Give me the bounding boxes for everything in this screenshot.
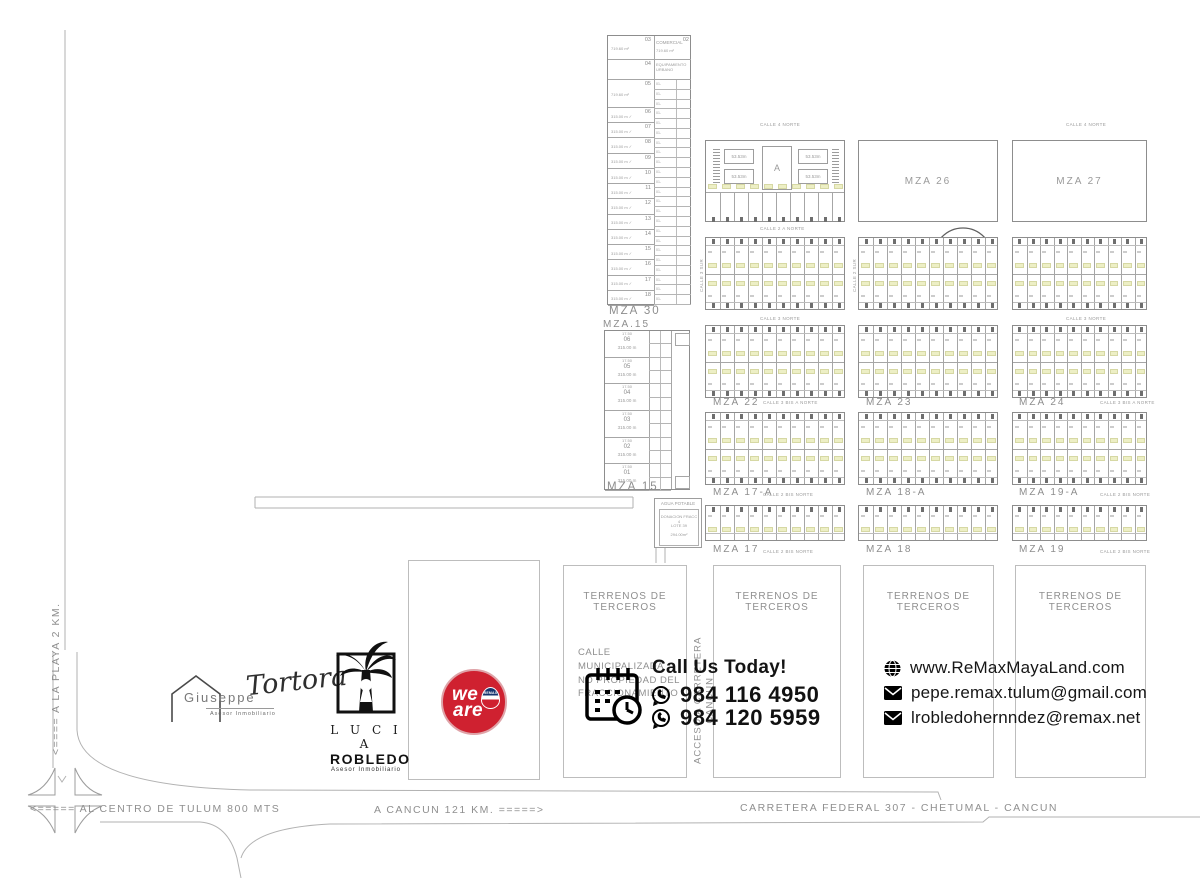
map-element: [824, 327, 827, 332]
map-element: [861, 470, 865, 472]
map-element: [973, 527, 982, 532]
lot-area: 315.00 m ✓: [611, 296, 632, 301]
map-element: [1137, 456, 1146, 461]
map-element: [676, 178, 677, 187]
map-element: [726, 414, 729, 419]
terrenos-label: TERRENOS DE TERCEROS: [1016, 591, 1145, 613]
map-element: [1099, 327, 1102, 332]
map-element: [945, 281, 954, 286]
map-element: [660, 358, 661, 370]
map-element: [1042, 295, 1046, 297]
map-element: [1083, 456, 1092, 461]
map-element: [734, 506, 735, 540]
agua-potable-title: AGUA POTABLE: [655, 501, 701, 506]
call-us-headline: Call Us Today!: [652, 657, 787, 679]
whatsapp-icon: [650, 708, 671, 729]
lot-area: 315.00 m ✓: [611, 144, 632, 149]
map-element: [917, 456, 926, 461]
map-element: [764, 456, 773, 461]
map-element: [929, 506, 930, 540]
map-element: [820, 527, 829, 532]
map-element: [722, 426, 726, 428]
email-text: lrobledohernndez@remax.net: [911, 708, 1140, 728]
map-element: [764, 527, 773, 532]
map-element: [963, 414, 966, 419]
map-element: [991, 327, 994, 332]
map-element: [917, 515, 921, 517]
map-element: [778, 351, 787, 356]
terrenos-label: TERRENOS DE TERCEROS: [864, 591, 993, 613]
lot-number: 01: [605, 470, 649, 476]
map-element: [820, 369, 829, 374]
map-element: [676, 100, 677, 109]
map-element: [1029, 369, 1038, 374]
map-element: [1096, 527, 1105, 532]
map-element: [861, 438, 870, 443]
map-element: [750, 515, 754, 517]
map-element: [778, 456, 787, 461]
lot-cell: 01-: [654, 188, 691, 198]
block-row4-col2: [858, 412, 998, 485]
block-row2-col3: [1012, 237, 1147, 310]
map-element: [1029, 263, 1038, 268]
block-label: MZA 17: [713, 544, 759, 555]
lot-code: 01-: [656, 219, 661, 223]
map-element: [722, 369, 731, 374]
map-element: [959, 470, 963, 472]
map-element: [740, 507, 743, 512]
map-element: [1018, 327, 1021, 332]
map-element: [722, 438, 731, 443]
lot-area: 315.00 m ✓: [611, 159, 632, 164]
map-element: [1013, 420, 1146, 421]
map-element: [676, 80, 677, 89]
map-element: [931, 369, 940, 374]
map-element: [987, 281, 996, 286]
map-element: [1018, 239, 1021, 244]
block-mza-26: MZA 26: [858, 140, 998, 222]
map-element: [985, 506, 986, 540]
block-label: MZA 19-A: [1019, 487, 1079, 498]
map-element: [917, 339, 921, 341]
map-element: [834, 263, 843, 268]
map-element: [754, 507, 757, 512]
map-element: [1096, 351, 1105, 356]
map-element: [889, 470, 893, 472]
map-element: [959, 251, 963, 253]
map-element: [764, 339, 768, 341]
map-element: [917, 470, 921, 472]
lot-width-dim: 17.50: [605, 464, 649, 469]
lot-number: 09: [645, 155, 651, 161]
map-element: [1072, 239, 1075, 244]
lot-number: 04: [645, 61, 651, 67]
lot-cell: 01-: [654, 158, 691, 168]
map-element: [768, 217, 771, 222]
map-element: [1113, 507, 1116, 512]
map-element: [875, 426, 879, 428]
map-element: [949, 478, 952, 483]
lot-cell: 17.5006315.00 m: [605, 331, 649, 358]
map-element: [1113, 391, 1116, 396]
map-element: [945, 339, 949, 341]
map-element: [820, 438, 829, 443]
map-element: [973, 351, 982, 356]
map-element: [1086, 303, 1089, 308]
map-element: [963, 239, 966, 244]
map-element: [706, 362, 844, 363]
map-element: [660, 438, 661, 450]
map-element: [921, 507, 924, 512]
map-element: [875, 339, 879, 341]
street-label: CALLE 3 BIS A NORTE: [1100, 400, 1155, 405]
map-element: [820, 184, 829, 189]
lot-cell: [649, 411, 671, 424]
map-element: [768, 478, 771, 483]
map-element: [1137, 295, 1141, 297]
map-element: [1108, 506, 1109, 540]
map-element: [949, 414, 952, 419]
map-element: [1110, 515, 1114, 517]
hatch-strip: [832, 149, 839, 183]
map-element: [1110, 527, 1119, 532]
map-element: [903, 456, 912, 461]
map-element: [903, 527, 912, 532]
map-element: [879, 478, 882, 483]
lot-cell: 17.5004315.00 m: [605, 384, 649, 411]
map-element: [1126, 303, 1129, 308]
map-element: [931, 281, 940, 286]
map-element: [834, 456, 843, 461]
lot-width-dim: 17.50: [605, 331, 649, 336]
map-element: [676, 276, 677, 285]
map-element: [959, 438, 968, 443]
map-element: [740, 478, 743, 483]
map-element: [824, 478, 827, 483]
map-element: [838, 327, 841, 332]
map-element: [931, 438, 940, 443]
map-element: [838, 478, 841, 483]
map-element: [1083, 515, 1087, 517]
map-element: [879, 327, 882, 332]
map-element: [977, 414, 980, 419]
map-element: [796, 507, 799, 512]
map-element: [1015, 281, 1024, 286]
map-element: [1137, 383, 1141, 385]
map-element: [861, 281, 870, 286]
map-element: [859, 245, 997, 246]
map-element: [1072, 507, 1075, 512]
map-element: [935, 507, 938, 512]
map-element: [917, 263, 926, 268]
map-element: [959, 383, 963, 385]
map-element: [782, 239, 785, 244]
plaza-lot-dim: 53.53m: [798, 169, 828, 184]
map-element: [792, 263, 801, 268]
lot-cell: 04: [608, 60, 654, 80]
map-element: [750, 339, 754, 341]
lot-cell: [649, 358, 671, 371]
block-label: MZA 18: [866, 544, 912, 555]
map-element: [931, 383, 935, 385]
map-element: [712, 217, 715, 222]
map-element: [1042, 351, 1051, 356]
lot-cell: EQUIPAMIENTO URBANO: [654, 60, 691, 80]
map-element: [671, 331, 672, 489]
map-element: [1054, 506, 1055, 540]
map-element: [1099, 303, 1102, 308]
map-element: [1123, 263, 1132, 268]
map-element: [987, 339, 991, 341]
map-element: [1015, 426, 1019, 428]
block-label: MZA 24: [1019, 397, 1065, 408]
map-element: [1045, 507, 1048, 512]
map-element: [1110, 369, 1119, 374]
map-element: [818, 506, 819, 540]
map-element: [708, 515, 712, 517]
map-element: [820, 339, 824, 341]
map-element: [1032, 507, 1035, 512]
street-label: CALLE 4 NORTE: [1066, 122, 1106, 127]
map-element: [931, 527, 940, 532]
block-mza-a: 53.53m53.53m53.53m53.53mA: [705, 140, 845, 222]
map-element: [722, 351, 731, 356]
map-element: [722, 470, 726, 472]
robledo-text: ROBLEDO: [330, 751, 402, 767]
lot-cell: 01-: [654, 148, 691, 158]
map-element: [1067, 506, 1068, 540]
lot-cell: 01-: [654, 178, 691, 188]
map-element: [834, 515, 838, 517]
map-element: [676, 119, 677, 128]
map-element: [1018, 391, 1021, 396]
map-element: [907, 239, 910, 244]
map-element: [1015, 263, 1024, 268]
map-element: [834, 339, 838, 341]
globe-icon: [884, 660, 901, 677]
map-element: [736, 184, 745, 189]
map-element: [676, 158, 677, 167]
map-element: [987, 295, 991, 297]
road-label-centro: <===== AL CENTRO DE TULUM 800 MTS: [30, 803, 280, 815]
map-element: [834, 295, 838, 297]
lot-number: 06: [645, 109, 651, 115]
map-element: [931, 351, 940, 356]
lot-area: 315.00 m ✓: [611, 175, 632, 180]
map-element: [1072, 478, 1075, 483]
block-row5-col1: [705, 505, 845, 541]
map-element: [810, 239, 813, 244]
street-label: CALLE 2 BIS NORTE: [1100, 492, 1150, 497]
map-element: [810, 507, 813, 512]
lot-code: 01-: [656, 131, 661, 135]
map-element: [776, 192, 777, 221]
lot-area: 719.60 m²: [656, 48, 674, 53]
lot-area: 315.00 m ✓: [611, 129, 632, 134]
map-element: [1123, 251, 1127, 253]
lot-cell: 09315.00 m ✓: [608, 154, 654, 169]
map-element: [957, 506, 958, 540]
map-element: [768, 507, 771, 512]
donacion-box: DONACION FRACC 4LOTE 39294.00m²: [659, 509, 699, 546]
map-element: [1018, 414, 1021, 419]
map-element: [987, 263, 996, 268]
map-element: [1059, 391, 1062, 396]
map-element: [778, 383, 782, 385]
map-element: [1137, 438, 1146, 443]
map-element: [660, 371, 661, 383]
lot-code: 01-: [656, 209, 661, 213]
map-element: [977, 507, 980, 512]
map-element: [778, 263, 787, 268]
lot-code: 01-: [656, 180, 661, 184]
map-element: [865, 303, 868, 308]
map-element: [859, 333, 997, 334]
map-element: [676, 148, 677, 157]
map-element: [907, 414, 910, 419]
map-element: [1056, 295, 1060, 297]
map-element: [838, 414, 841, 419]
map-element: [834, 438, 843, 443]
map-element: [973, 369, 982, 374]
map-element: [1137, 251, 1141, 253]
lot-cell: 01-: [654, 109, 691, 119]
map-element: [782, 414, 785, 419]
map-element: [1096, 251, 1100, 253]
remax-balloon-icon: REMAX: [481, 687, 500, 709]
lot-area: 315.00 m ✓: [611, 114, 632, 119]
map-element: [754, 327, 757, 332]
map-element: [879, 414, 882, 419]
map-element: [778, 438, 787, 443]
map-element: [1072, 391, 1075, 396]
map-element: [959, 351, 968, 356]
map-element: [764, 426, 768, 428]
map-element: [893, 239, 896, 244]
map-element: [792, 351, 801, 356]
map-element: [973, 456, 982, 461]
lot-cell: 08315.00 m ✓: [608, 138, 654, 153]
map-element: [750, 426, 754, 428]
block-label-mza-15-top: MZA.15: [603, 319, 650, 330]
street-label: CALLE 2 SUR: [852, 259, 857, 292]
lot-number: 10: [645, 170, 651, 176]
map-element: [1096, 295, 1100, 297]
map-element: [1113, 478, 1116, 483]
map-element: [1029, 456, 1038, 461]
map-element: [859, 274, 997, 275]
map-element: [754, 303, 757, 308]
map-element: [764, 383, 768, 385]
map-element: [1083, 369, 1092, 374]
map-element: [875, 351, 884, 356]
map-element: [676, 168, 677, 177]
map-element: [889, 251, 893, 253]
map-element: [1069, 339, 1073, 341]
map-element: [1086, 391, 1089, 396]
map-element: [959, 515, 963, 517]
map-element: [1029, 527, 1038, 532]
map-element: [945, 383, 949, 385]
map-element: [754, 478, 757, 483]
map-element: [676, 237, 677, 246]
map-element: [1140, 239, 1143, 244]
map-element: [722, 515, 726, 517]
map-element: [887, 506, 888, 540]
map-element: [792, 515, 796, 517]
lot-area: 315.00 m: [605, 452, 649, 457]
map-element: [806, 438, 815, 443]
street-label: CALLE 3 NORTE: [760, 316, 800, 321]
map-element: [1056, 383, 1060, 385]
map-element: [708, 295, 712, 297]
map-element: [987, 470, 991, 472]
map-element: [987, 456, 996, 461]
agua-potable-box: AGUA POTABLEDONACION FRACC 4LOTE 39294.0…: [654, 498, 702, 548]
lot-area: 315.00 m ✓: [611, 235, 632, 240]
map-element: [931, 426, 935, 428]
map-element: [889, 438, 898, 443]
map-element: [768, 414, 771, 419]
map-element: [1137, 351, 1146, 356]
map-element: [712, 478, 715, 483]
email-row: lrobledohernndez@remax.net: [884, 708, 1140, 728]
map-element: [931, 251, 935, 253]
block-label: MZA 19: [1019, 544, 1065, 555]
map-element: [1069, 515, 1073, 517]
map-element: [931, 456, 940, 461]
map-element: [991, 303, 994, 308]
map-element: [1045, 303, 1048, 308]
lot-number: 17: [645, 277, 651, 283]
map-element: [722, 251, 726, 253]
map-element: [875, 515, 879, 517]
map-element: [832, 506, 833, 540]
map-element: [1126, 327, 1129, 332]
map-element: [1113, 327, 1116, 332]
map-element: [1013, 333, 1146, 334]
map-element: [806, 456, 815, 461]
map-element: [1032, 478, 1035, 483]
block-label: MZA 26: [859, 176, 997, 187]
envelope-icon: [884, 711, 902, 725]
map-element: [726, 239, 729, 244]
lot-number: 11: [645, 185, 651, 191]
map-element: [1056, 456, 1065, 461]
map-element: [861, 527, 870, 532]
map-element: [750, 527, 759, 532]
map-element: [736, 281, 745, 286]
map-element: [708, 426, 712, 428]
map-element: [945, 426, 949, 428]
map-element: [708, 251, 712, 253]
terrenos-label: TERRENOS DE TERCEROS: [564, 591, 686, 613]
map-element: [1042, 456, 1051, 461]
map-element: [889, 369, 898, 374]
lot-cell: 01-: [654, 217, 691, 227]
lot-cell: 05719.60 m²: [608, 80, 654, 108]
lot-cell: 01-: [654, 266, 691, 276]
map-element: [750, 438, 759, 443]
map-element: [782, 478, 785, 483]
map-element: [764, 438, 773, 443]
map-element: [754, 239, 757, 244]
map-element: [676, 256, 677, 265]
map-element: [1069, 369, 1078, 374]
giuseppe-tortora-logo: Giuseppe Tortora Asesor Inmobiliario: [166, 660, 316, 730]
map-element: [1083, 527, 1092, 532]
map-element: [977, 303, 980, 308]
